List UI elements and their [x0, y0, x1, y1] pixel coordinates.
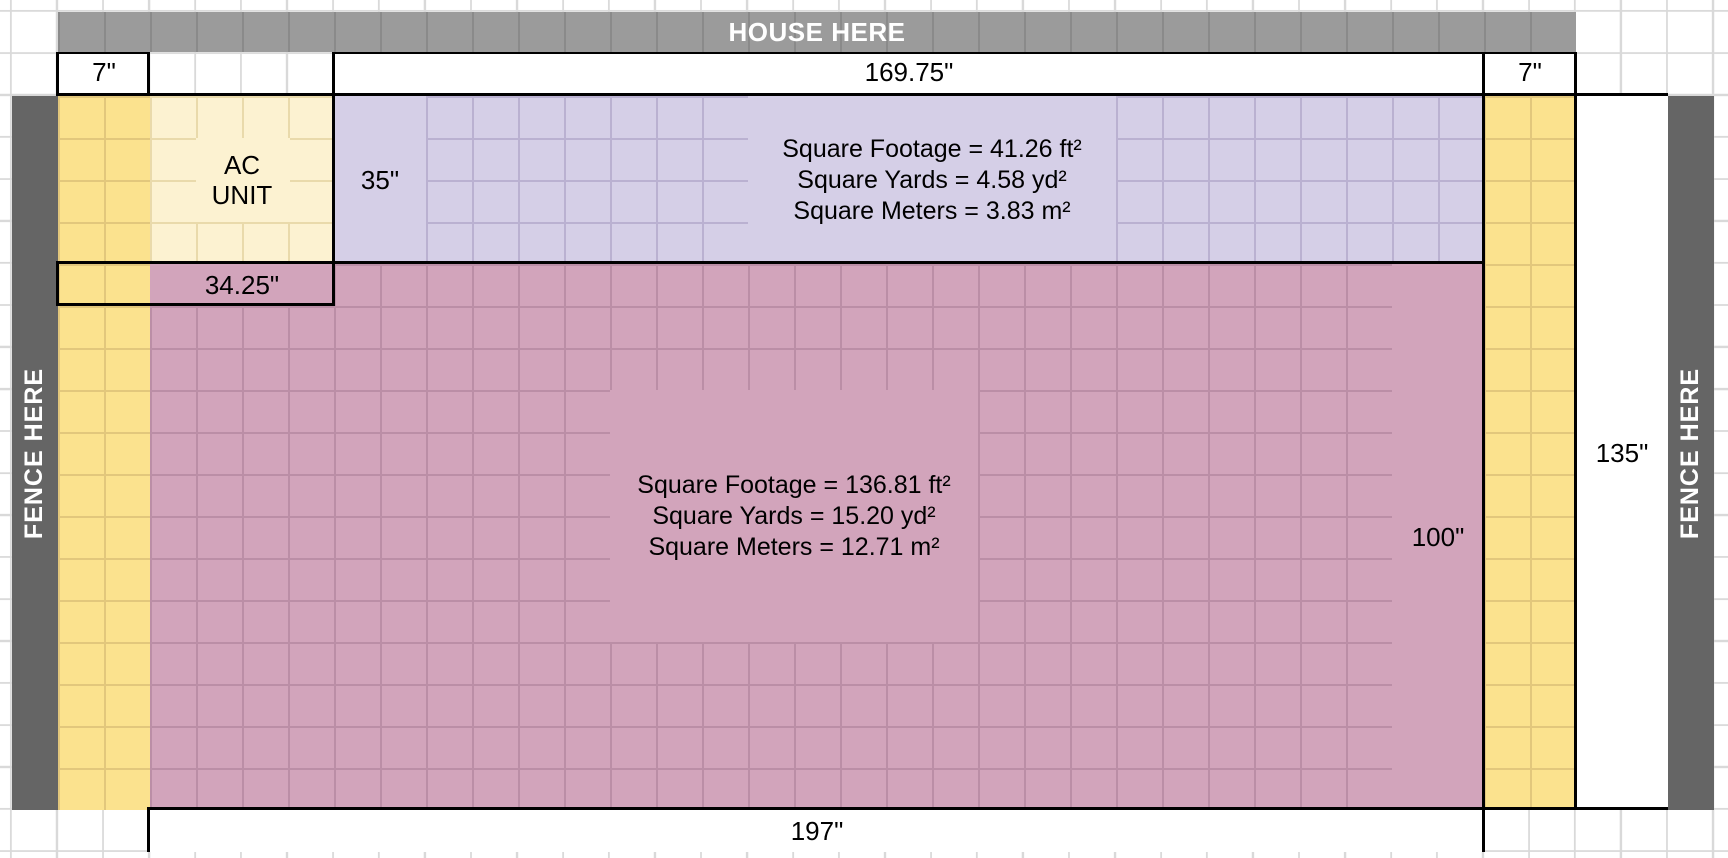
border-line: [1484, 52, 1576, 54]
dim-left-offset: 7": [92, 57, 116, 88]
dim-house-width-box: 169.75": [334, 52, 1484, 93]
border-line: [1574, 52, 1577, 810]
dim-house-width: 169.75": [865, 57, 954, 88]
dim-upper-height-cell: 35": [334, 96, 426, 264]
fence-right[interactable]: FENCE HERE: [1668, 96, 1714, 810]
dim-right-height: 135": [1596, 438, 1649, 469]
upper-stat-yards: Square Yards = 4.58 yd²: [797, 165, 1066, 196]
lower-stat-yards: Square Yards = 15.20 yd²: [652, 501, 935, 532]
fence-left[interactable]: FENCE HERE: [12, 96, 58, 810]
border-line: [147, 807, 150, 852]
ac-unit-line1: AC: [224, 150, 260, 180]
border-line: [56, 52, 59, 96]
dim-ac-width: 34.25": [205, 270, 279, 301]
fence-left-label: FENCE HERE: [21, 367, 50, 538]
dim-right-offset-box: 7": [1484, 52, 1576, 93]
house-label: HOUSE HERE: [729, 17, 906, 48]
border-line: [58, 303, 334, 306]
border-line: [58, 93, 1668, 96]
lower-stat-meters: Square Meters = 12.71 m²: [648, 532, 939, 563]
dim-right-height-cell: 135": [1576, 96, 1668, 810]
dim-lower-height: 100": [1412, 522, 1465, 553]
spreadsheet-canvas[interactable]: HOUSE HERE FENCE HERE FENCE HERE AC UNIT…: [0, 0, 1728, 858]
lower-area-stats: Square Footage = 136.81 ft² Square Yards…: [610, 390, 978, 642]
border-line: [150, 807, 1668, 810]
yellow-margin-left[interactable]: [58, 96, 150, 810]
dim-left-offset-box: 7": [58, 52, 150, 93]
dim-ac-width-cell: 34.25": [150, 264, 334, 306]
border-line: [56, 261, 59, 306]
border-line: [1482, 52, 1485, 852]
house-bar[interactable]: HOUSE HERE: [58, 12, 1576, 52]
fence-right-label: FENCE HERE: [1677, 367, 1706, 538]
border-line: [147, 52, 150, 96]
ac-unit-line2: UNIT: [212, 180, 273, 210]
ac-unit-label: AC UNIT: [150, 96, 334, 264]
border-line: [332, 52, 335, 306]
upper-stat-meters: Square Meters = 3.83 m²: [793, 196, 1070, 227]
dim-lower-height-cell: 100": [1392, 264, 1484, 810]
border-line: [58, 52, 150, 54]
dim-right-offset: 7": [1518, 57, 1542, 88]
dim-upper-height: 35": [361, 165, 399, 196]
dim-total-width-box: 197": [150, 810, 1484, 852]
upper-stat-footage: Square Footage = 41.26 ft²: [782, 134, 1082, 165]
yellow-margin-right[interactable]: [1484, 96, 1576, 810]
upper-area-stats: Square Footage = 41.26 ft² Square Yards …: [748, 96, 1116, 264]
border-line: [58, 261, 1484, 264]
border-line: [334, 52, 1484, 54]
dim-total-width: 197": [791, 816, 844, 847]
lower-stat-footage: Square Footage = 136.81 ft²: [637, 470, 950, 501]
